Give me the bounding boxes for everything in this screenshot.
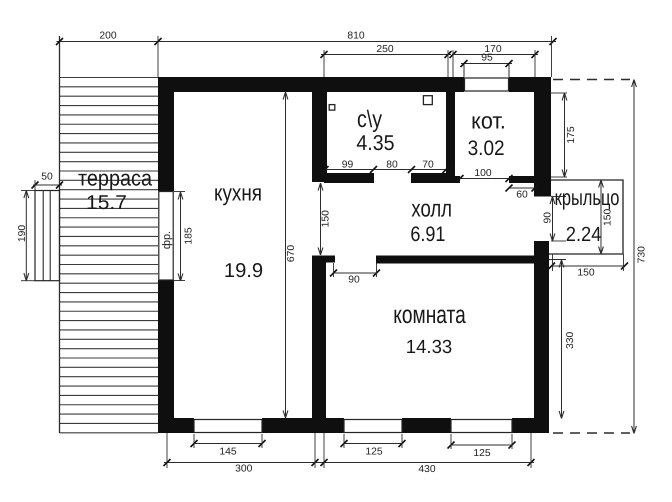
svg-text:185: 185 (184, 227, 195, 245)
svg-text:175: 175 (566, 126, 577, 144)
svg-text:125: 125 (365, 446, 383, 457)
svg-text:430: 430 (418, 464, 436, 475)
svg-text:60: 60 (516, 190, 528, 201)
svg-text:145: 145 (219, 446, 237, 457)
svg-text:6.91: 6.91 (410, 223, 445, 246)
svg-text:200: 200 (99, 31, 117, 42)
svg-text:90: 90 (543, 211, 554, 223)
svg-text:190: 190 (17, 224, 28, 242)
svg-text:15.7: 15.7 (86, 192, 127, 214)
svg-text:250: 250 (376, 44, 394, 55)
svg-text:150: 150 (577, 267, 595, 278)
svg-text:300: 300 (235, 463, 253, 474)
svg-text:330: 330 (565, 331, 576, 349)
svg-text:70: 70 (422, 160, 434, 171)
svg-text:80: 80 (386, 160, 398, 171)
svg-text:100: 100 (474, 168, 492, 179)
svg-text:14.33: 14.33 (406, 337, 452, 358)
svg-text:99: 99 (342, 160, 354, 171)
svg-text:кухня: кухня (214, 180, 262, 206)
svg-text:19.9: 19.9 (224, 260, 263, 282)
svg-text:2.24: 2.24 (566, 223, 602, 246)
svg-text:810: 810 (347, 31, 365, 42)
svg-text:терраса: терраса (78, 165, 153, 190)
svg-text:4.35: 4.35 (356, 131, 394, 155)
svg-text:крыльцо: крыльцо (555, 185, 620, 210)
svg-text:50: 50 (41, 172, 53, 183)
svg-text:фр.: фр. (161, 231, 173, 249)
svg-text:670: 670 (286, 244, 297, 262)
svg-text:90: 90 (348, 275, 360, 286)
svg-text:3.02: 3.02 (468, 137, 505, 160)
svg-text:кот.: кот. (471, 107, 506, 133)
svg-text:730: 730 (636, 246, 647, 264)
svg-text:150: 150 (603, 208, 614, 226)
svg-text:с\у: с\у (357, 106, 382, 133)
svg-text:170: 170 (484, 44, 502, 55)
svg-text:150: 150 (321, 210, 332, 228)
svg-text:холл: холл (411, 195, 452, 222)
svg-text:комната: комната (393, 301, 466, 329)
svg-text:125: 125 (473, 448, 491, 459)
